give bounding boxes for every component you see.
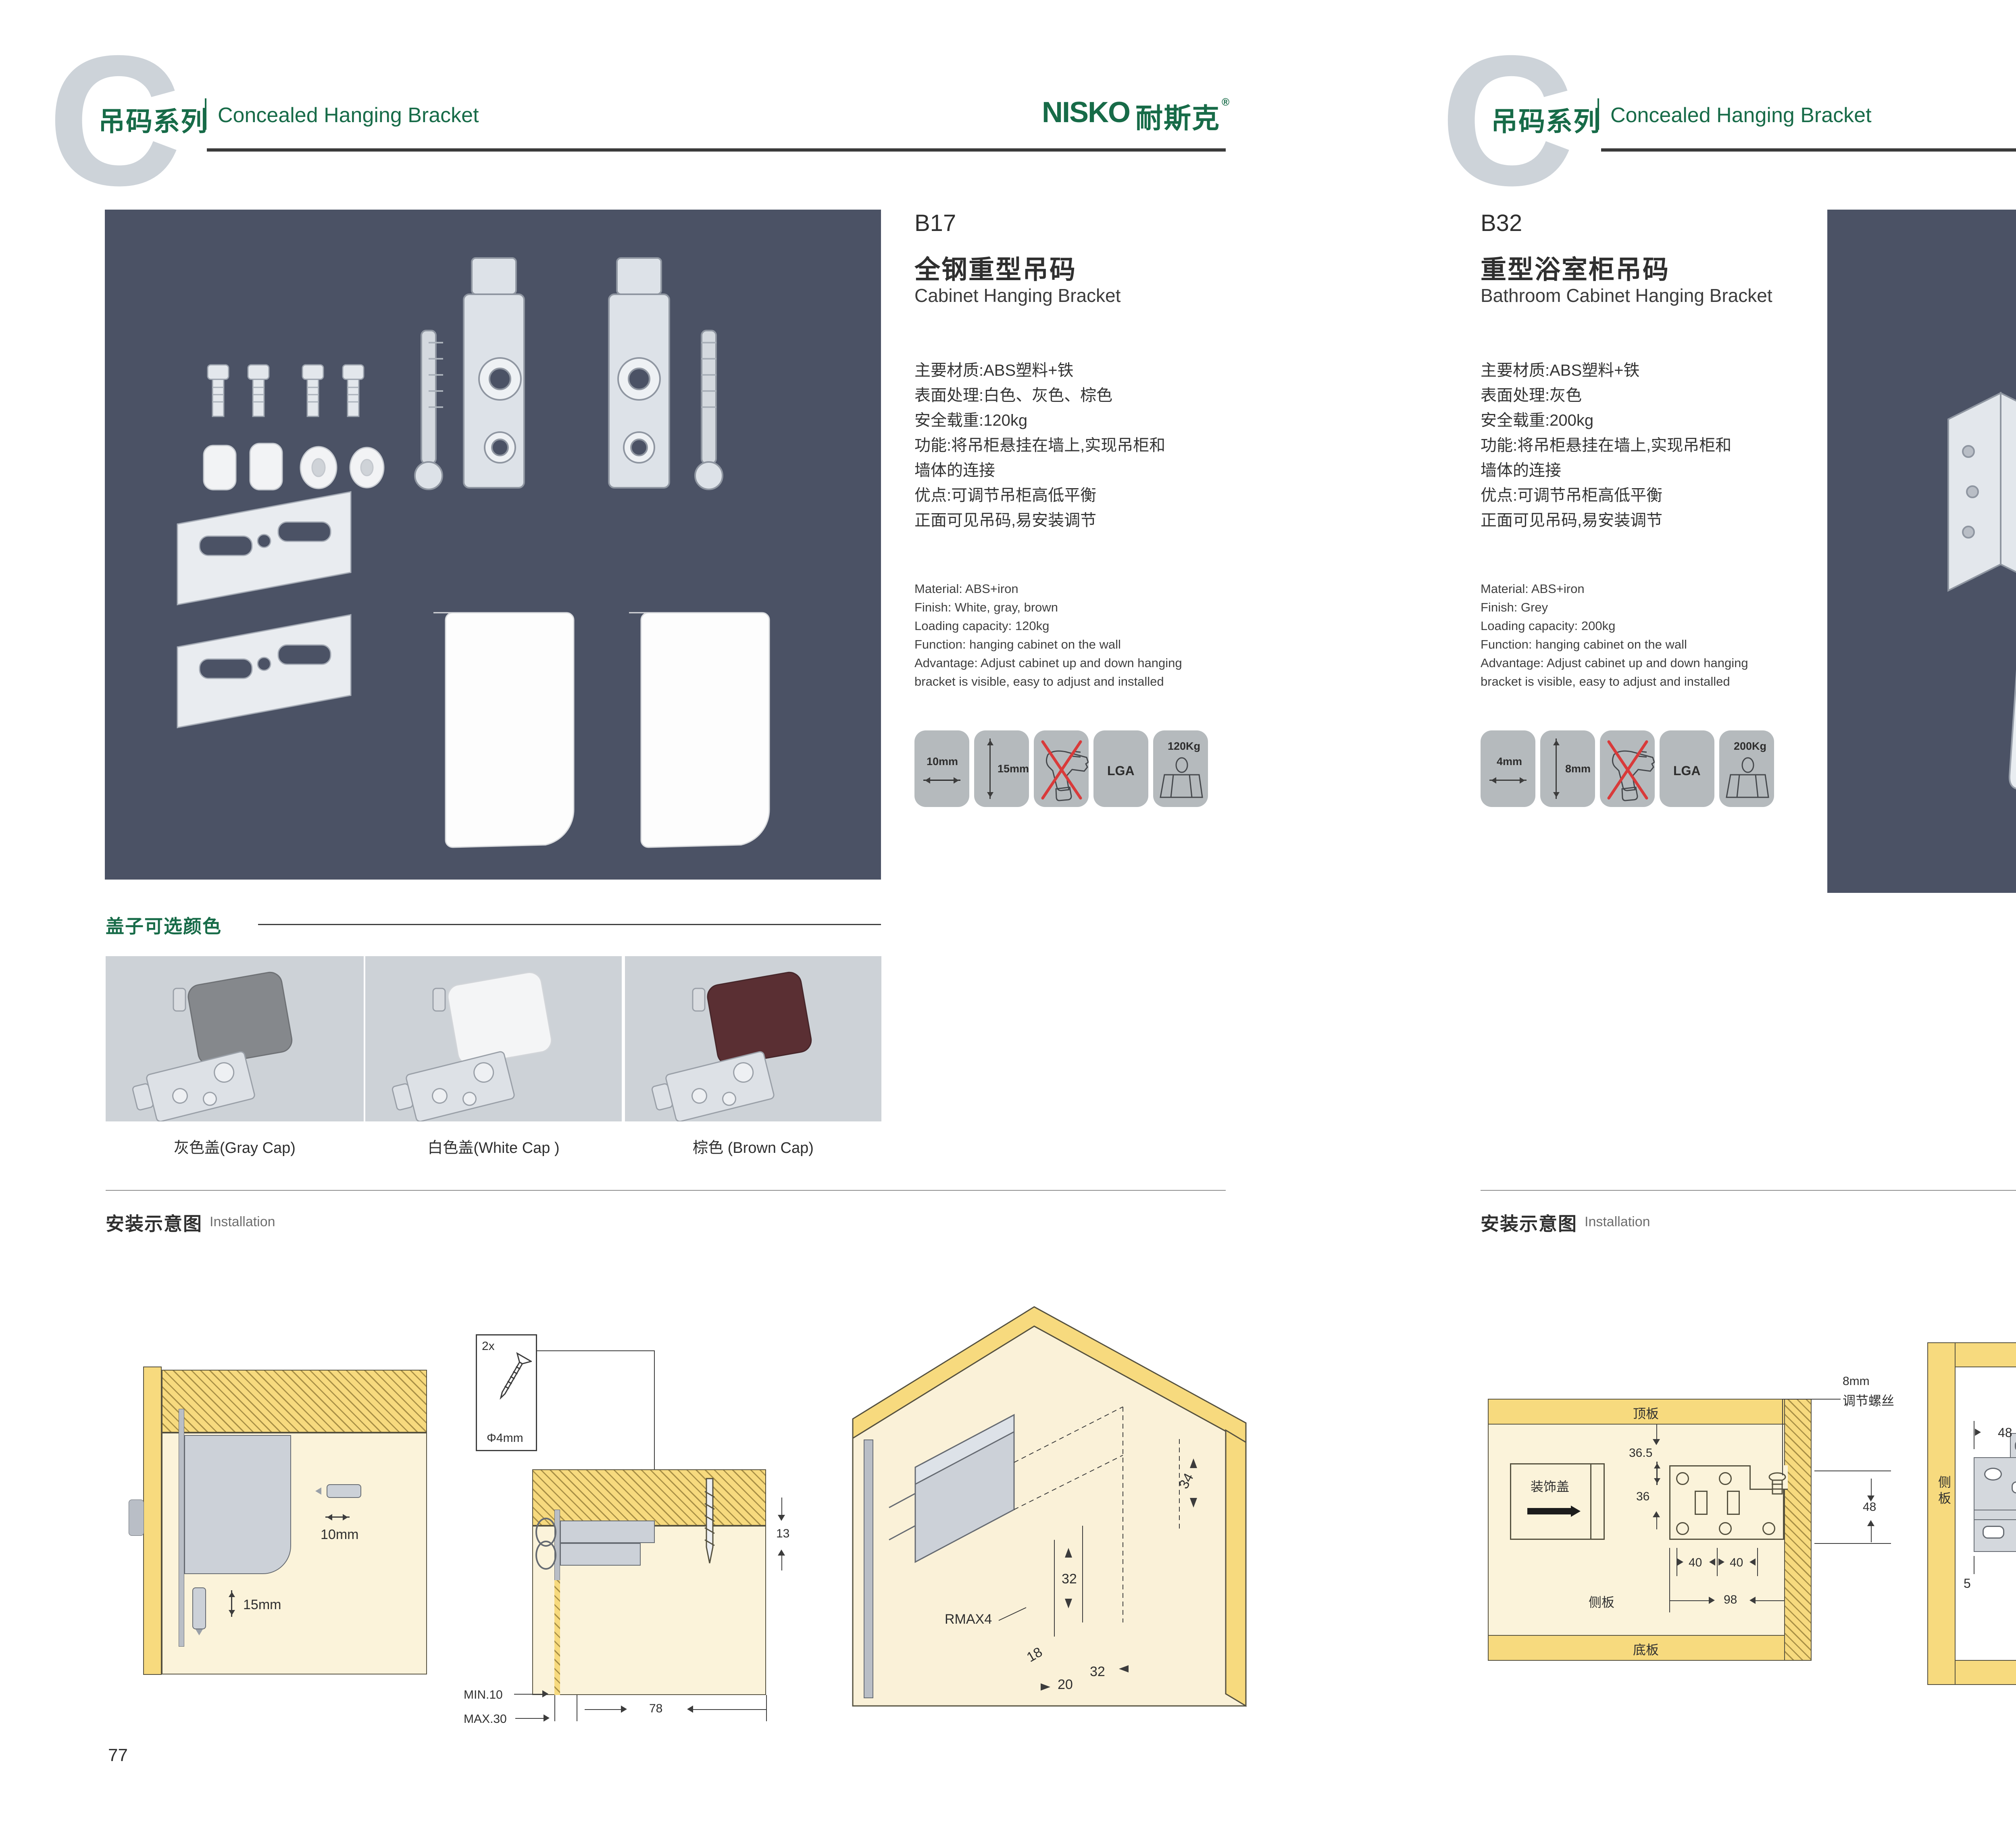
spec-line: Material: ABS+iron: [914, 580, 1245, 598]
product-code: B32: [1481, 210, 1522, 237]
product-photo-b17-art: [105, 210, 881, 880]
product-photo-b32-art: [1827, 210, 2016, 893]
height-value: 15mm: [998, 763, 1029, 775]
icon-tile-width: 4mm: [1481, 730, 1535, 807]
series-title-cn: 吊码系列: [1491, 100, 1601, 139]
install-diagram-side-section: 10mm 15mm: [143, 1367, 431, 1675]
catalog-spread: C 吊码系列 Concealed Hanging Bracket NISKO耐斯…: [0, 0, 2016, 1847]
dim-10mm: 10mm: [321, 1527, 358, 1543]
dim-78: 78: [649, 1702, 662, 1716]
spec-line: 优点:可调节吊柜高低平衡: [914, 483, 1245, 508]
product-specs-cn: 主要材质:ABS塑料+铁 表面处理:灰色 安全载重:200kg 功能:将吊柜悬挂…: [1481, 358, 1823, 533]
dim-48: 48: [1863, 1500, 1876, 1514]
spec-line: 功能:将吊柜悬挂在墙上,实现吊柜和: [914, 433, 1245, 458]
label-side-board: 侧板: [1589, 1592, 1614, 1611]
spec-line: 功能:将吊柜悬挂在墙上,实现吊柜和: [1481, 433, 1823, 458]
install-diagram-side-view: 顶板 底板 侧板 装饰盖: [1488, 1375, 1907, 1665]
cap-photo-brown: [625, 956, 881, 1121]
spec-line: Function: hanging cabinet on the wall: [914, 635, 1245, 654]
spec-line: bracket is visible, easy to adjust and i…: [1481, 672, 1823, 691]
spec-line: Finish: White, gray, brown: [914, 598, 1245, 617]
deco-cover-box: 装饰盖: [1510, 1463, 1605, 1540]
spec-line: Material: ABS+iron: [1481, 580, 1823, 598]
label-deco-cover: 装饰盖: [1531, 1477, 1569, 1495]
panel-screw-icon: [698, 1475, 722, 1576]
spec-line: 优点:可调节吊柜高低平衡: [1481, 483, 1823, 508]
no-drill-icon: [1600, 730, 1655, 807]
dim-98: 98: [1724, 1593, 1737, 1607]
spec-line: Advantage: Adjust cabinet up and down ha…: [914, 654, 1245, 672]
header-rule: [1601, 148, 2016, 152]
cap-photo-brown-art: [625, 956, 881, 1121]
icon-tile-width: 10mm: [914, 730, 969, 807]
dim-min: MIN.10: [464, 1688, 503, 1702]
svg-text:20: 20: [1058, 1677, 1073, 1692]
install-heading-en: Installation: [210, 1214, 275, 1230]
no-drill-icon: [1034, 730, 1089, 807]
vertical-arrow-icon: [989, 738, 991, 799]
spec-line: Loading capacity: 200kg: [1481, 617, 1823, 635]
icon-tile-no-drill: [1034, 730, 1089, 807]
bracket-shape: [184, 1435, 291, 1574]
registered-mark-icon: ®: [1222, 96, 1229, 108]
spec-line: 墙体的连接: [914, 458, 1245, 483]
dim-15mm: 15mm: [243, 1597, 281, 1613]
dim-36-5: 36.5: [1629, 1446, 1652, 1460]
page-left: C 吊码系列 Concealed Hanging Bracket NISKO耐斯…: [0, 0, 1352, 1847]
product-specs-cn: 主要材质:ABS塑料+铁 表面处理:白色、灰色、棕色 安全载重:120kg 功能…: [914, 358, 1245, 533]
icon-tile-height: 8mm: [1540, 730, 1595, 807]
screw-icon: [492, 1347, 532, 1415]
label-top-board: 顶板: [1633, 1404, 1659, 1422]
deco-arrow-icon: [1527, 1508, 1572, 1514]
cap-label-white: 白色盖(White Cap ): [365, 1135, 622, 1157]
caps-heading: 盖子可选颜色: [106, 912, 222, 938]
spec-line: Loading capacity: 120kg: [914, 617, 1245, 635]
icon-tile-cert: LGA: [1660, 730, 1714, 807]
cap-photo-gray-art: [106, 956, 364, 1121]
screw-diameter: Φ4mm: [487, 1431, 523, 1445]
dim-arrow: [1656, 1462, 1658, 1485]
series-title-en: Concealed Hanging Bracket: [218, 103, 479, 127]
header-divider: [205, 98, 206, 130]
dim-13: 13: [776, 1527, 789, 1541]
label-bottom-board: 底板: [1633, 1640, 1659, 1658]
brand-logo: NISKO耐斯克®: [1042, 96, 1229, 136]
dim-5-left: 5: [1964, 1576, 1971, 1591]
spec-line: 主要材质:ABS塑料+铁: [1481, 358, 1823, 383]
load-weight-icon: [1725, 754, 1769, 802]
spec-line: 墙体的连接: [1481, 458, 1823, 483]
brand-logo-cn: 耐斯克: [1135, 96, 1220, 136]
product-photo-b32: [1827, 210, 2016, 893]
install-heading-cn: 安装示意图: [106, 1209, 202, 1236]
icon-tile-cert: LGA: [1093, 730, 1148, 807]
spec-line: Advantage: Adjust cabinet up and down ha…: [1481, 654, 1823, 672]
spec-line: Function: hanging cabinet on the wall: [1481, 635, 1823, 654]
svg-text:RMAX4: RMAX4: [945, 1612, 992, 1627]
product-name-cn: 重型浴室柜吊码: [1481, 249, 1670, 286]
product-specs-en: Material: ABS+iron Finish: Grey Loading …: [1481, 580, 1823, 691]
bracket-left: [1974, 1457, 2016, 1552]
spec-line: 安全载重:200kg: [1481, 408, 1823, 433]
page-right: C 吊码系列 Concealed Hanging Bracket NISKO耐斯…: [1352, 0, 2016, 1847]
load-value: 120Kg: [1168, 740, 1200, 753]
product-name-cn: 全钢重型吊码: [914, 249, 1077, 286]
load-value: 200Kg: [1734, 740, 1766, 753]
cert-label: LGA: [1673, 763, 1701, 778]
note-screw-size: 8mm: [1843, 1375, 1870, 1388]
dim-arrow-v: [231, 1590, 232, 1617]
height-value: 8mm: [1565, 763, 1591, 775]
icon-tile-load: 120Kg: [1153, 730, 1208, 807]
product-code: B17: [914, 210, 956, 237]
install-heading-cn: 安装示意图: [1481, 1209, 1577, 1236]
spec-line: 正面可见吊码,易安装调节: [1481, 508, 1823, 533]
cap-photo-gray: [106, 956, 364, 1121]
install-heading-en: Installation: [1585, 1214, 1650, 1230]
adjust-screw-icon: [1766, 1471, 1794, 1503]
cap-label-brown: 棕色 (Brown Cap): [625, 1135, 881, 1157]
product-specs-en: Material: ABS+iron Finish: White, gray, …: [914, 580, 1245, 691]
cert-label: LGA: [1107, 763, 1135, 778]
section-rule: [106, 1190, 1226, 1191]
icon-tile-height: 15mm: [974, 730, 1029, 807]
install-diagram-3d-cabinet: 34 32 RMAX4 18 20 32: [841, 1282, 1252, 1733]
product-name-en: Cabinet Hanging Bracket: [914, 285, 1120, 306]
series-title-cn: 吊码系列: [98, 100, 208, 139]
cap-label-gray: 灰色盖(Gray Cap): [106, 1135, 364, 1157]
spec-line: 表面处理:白色、灰色、棕色: [914, 383, 1245, 408]
dim-arrow-h: [325, 1516, 350, 1518]
spec-line: 正面可见吊码,易安装调节: [914, 508, 1245, 533]
icon-tile-load: 200Kg: [1719, 730, 1774, 807]
horizontal-arrow-icon: [923, 780, 960, 781]
spec-line: 主要材质:ABS塑料+铁: [914, 358, 1245, 383]
product-name-en: Bathroom Cabinet Hanging Bracket: [1481, 285, 1772, 306]
caps-heading-line: [258, 924, 881, 925]
series-title-en: Concealed Hanging Bracket: [1610, 103, 1872, 127]
cap-photo-white-art: [365, 956, 622, 1121]
svg-text:32: 32: [1062, 1571, 1077, 1587]
label-side-left: 侧板: [1935, 1475, 1953, 1508]
spec-line: Finish: Grey: [1481, 598, 1823, 617]
page-number: 77: [108, 1745, 128, 1766]
spec-line: bracket is visible, easy to adjust and i…: [914, 672, 1245, 691]
brand-logo-text: NISKO: [1042, 96, 1130, 129]
note-screw-name: 调节螺丝: [1843, 1391, 1894, 1409]
header-rule: [207, 148, 1226, 152]
screw-spec-box: 2x Φ4mm: [476, 1334, 537, 1451]
spec-line: 表面处理:灰色: [1481, 383, 1823, 408]
header-divider: [1597, 98, 1599, 130]
section-rule: [1481, 1190, 2016, 1191]
product-photo-b17: [105, 210, 881, 880]
install-diagram-front-view: 顶板 底板 侧板 侧板: [1927, 1342, 2016, 1685]
dim-48: 48: [1998, 1425, 2012, 1440]
spec-line: 安全载重:120kg: [914, 408, 1245, 433]
dim-40a: 40: [1689, 1556, 1702, 1570]
install-diagram-screw-section: 2x Φ4mm: [464, 1334, 831, 1721]
icon-tile-no-drill: [1600, 730, 1655, 807]
width-value: 10mm: [927, 755, 958, 768]
svg-text:32: 32: [1090, 1664, 1105, 1679]
width-value: 4mm: [1497, 755, 1522, 768]
cap-photo-white: [365, 956, 622, 1121]
load-weight-icon: [1159, 754, 1203, 802]
vertical-arrow-icon: [1556, 738, 1557, 799]
horizontal-arrow-icon: [1489, 780, 1527, 781]
dim-40b: 40: [1730, 1556, 1743, 1570]
dim-max: MAX.30: [464, 1712, 507, 1726]
dim-36: 36: [1636, 1490, 1649, 1504]
